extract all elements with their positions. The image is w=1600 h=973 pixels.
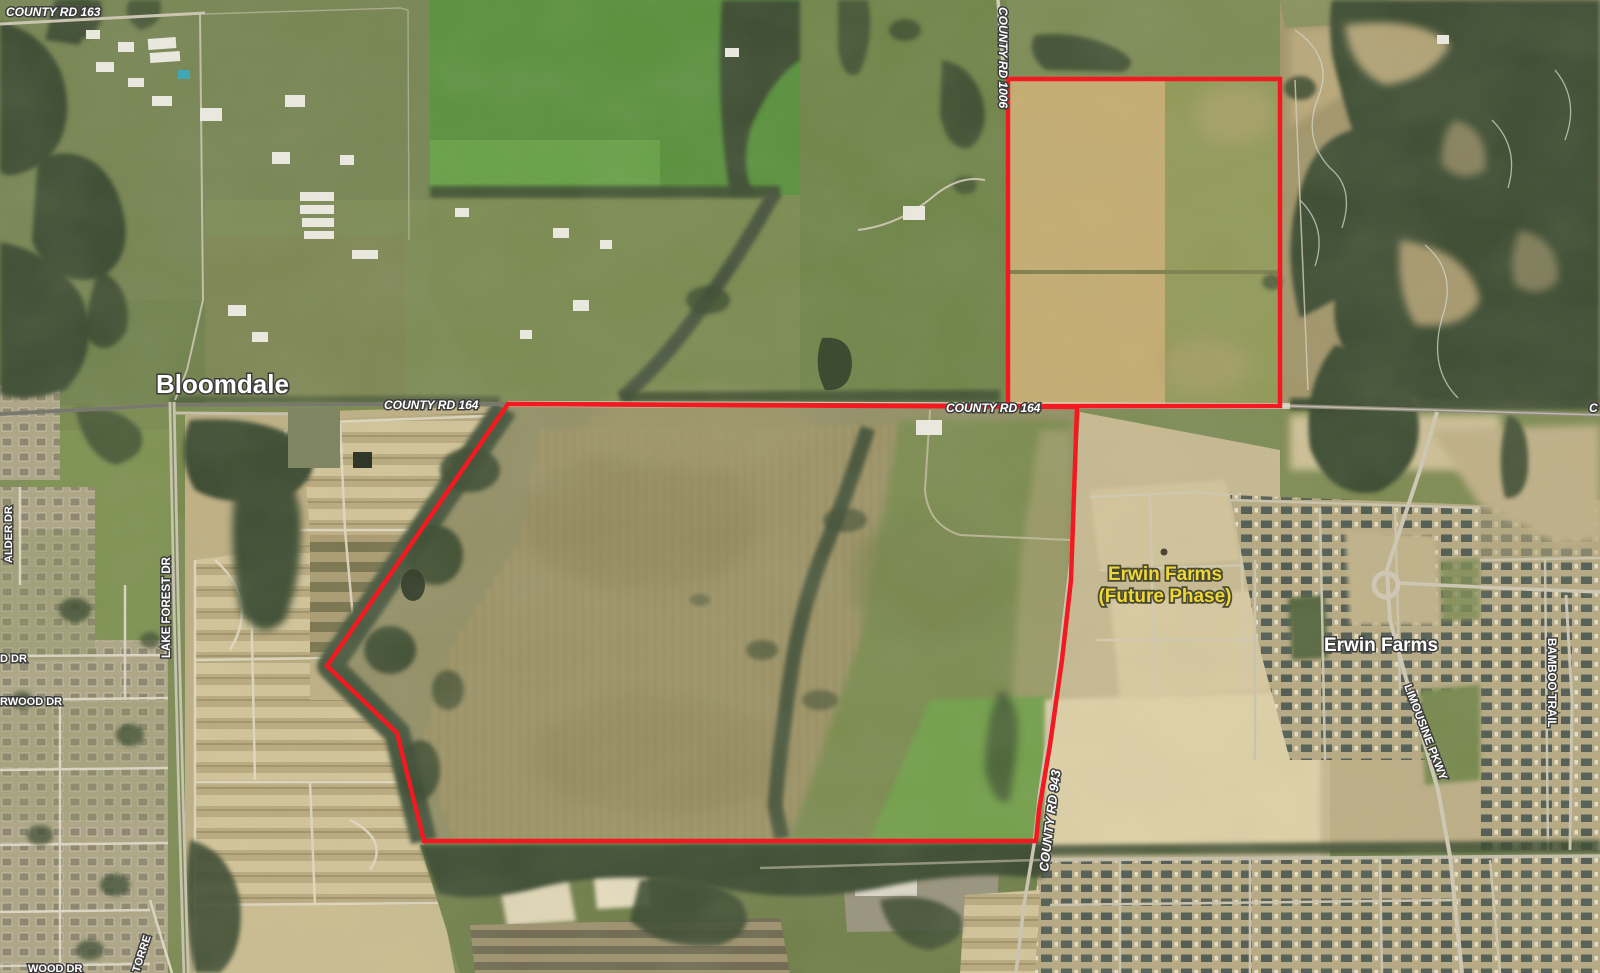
- svg-text:RWOOD DR: RWOOD DR: [0, 696, 62, 708]
- svg-text:WOOD DR: WOOD DR: [28, 963, 82, 973]
- svg-text:BAMBOO TRAIL: BAMBOO TRAIL: [1545, 638, 1557, 727]
- svg-text:COUNTY RD 163: COUNTY RD 163: [6, 5, 101, 19]
- svg-text:ALDER DR: ALDER DR: [3, 506, 15, 563]
- svg-text:COUNTY RD 1006: COUNTY RD 1006: [996, 7, 1010, 108]
- svg-text:C: C: [1589, 401, 1598, 415]
- svg-text:LAKE FOREST DR: LAKE FOREST DR: [161, 556, 173, 658]
- svg-text:COUNTY RD 164: COUNTY RD 164: [384, 398, 479, 412]
- svg-text:Erwin Farms: Erwin Farms: [1324, 635, 1438, 656]
- svg-text:Bloomdale: Bloomdale: [156, 369, 289, 399]
- svg-text:COUNTY RD 164: COUNTY RD 164: [946, 401, 1041, 415]
- svg-text:D DR: D DR: [0, 653, 27, 665]
- svg-text:(Future Phase): (Future Phase): [1098, 586, 1231, 607]
- svg-text:Erwin Farms: Erwin Farms: [1108, 564, 1222, 585]
